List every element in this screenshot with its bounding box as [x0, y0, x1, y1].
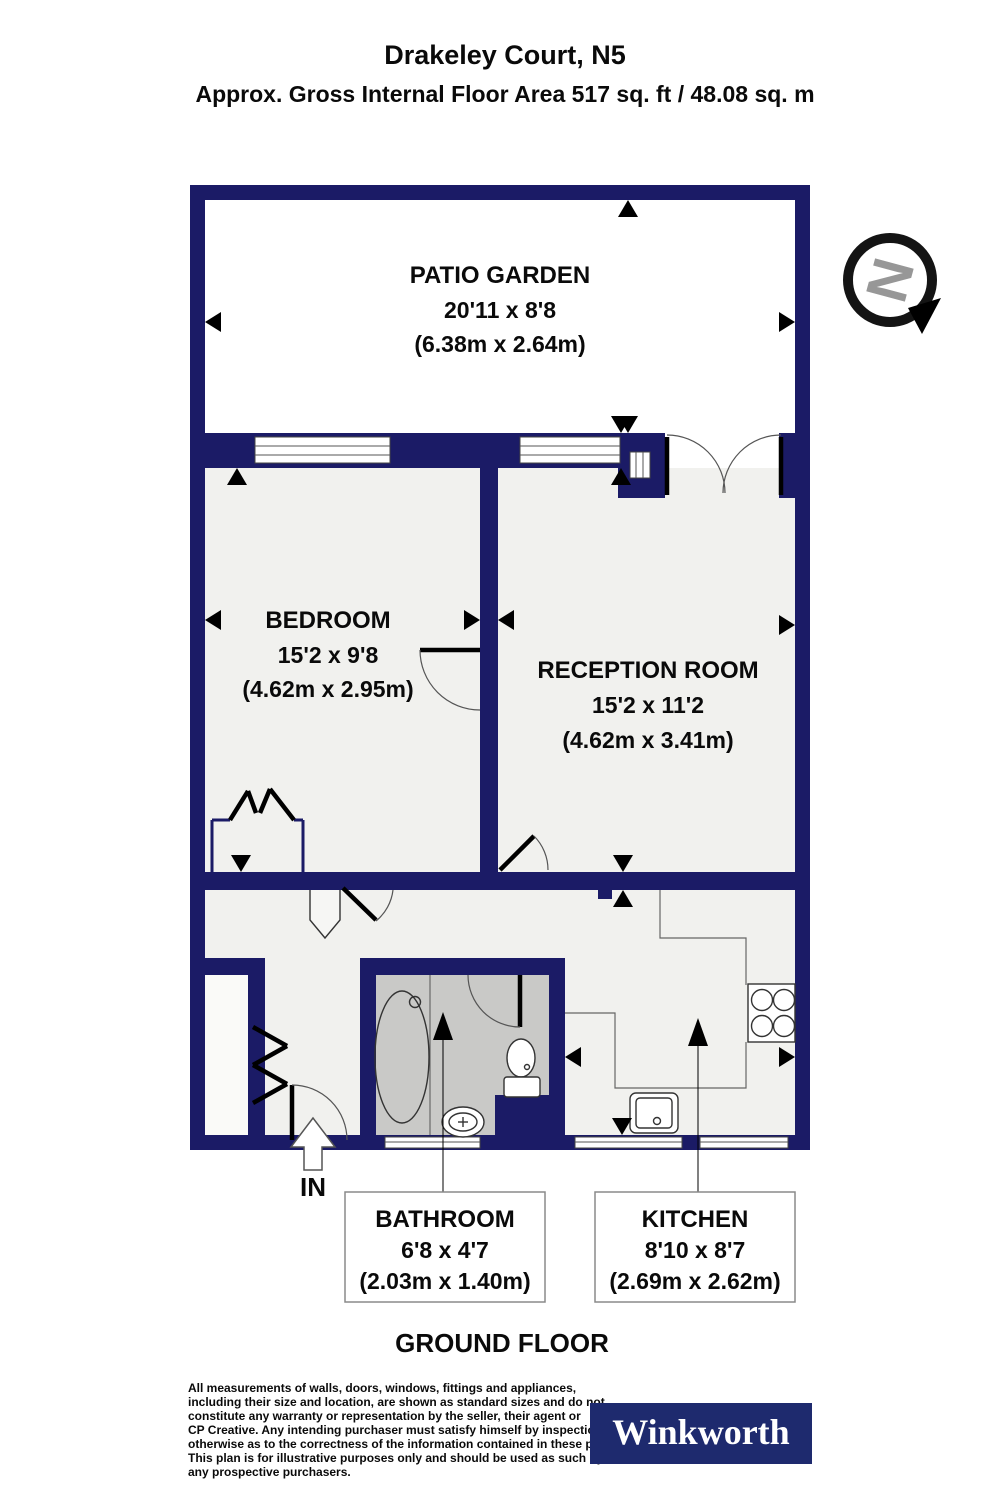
svg-text:BATHROOM: BATHROOM	[375, 1206, 515, 1233]
svg-text:otherwise as to the correctnes: otherwise as to the correctness of the i…	[188, 1437, 620, 1451]
page-subtitle: Approx. Gross Internal Floor Area 517 sq…	[195, 81, 814, 107]
entrance-label: IN	[300, 1172, 326, 1202]
brand-logo: Winkworth	[590, 1403, 812, 1464]
compass-north-letter: N	[853, 251, 927, 308]
svg-text:(2.03m x 1.40m): (2.03m x 1.40m)	[359, 1268, 530, 1294]
svg-text:KITCHEN: KITCHEN	[642, 1206, 749, 1233]
svg-text:15'2 x 9'8: 15'2 x 9'8	[278, 642, 379, 668]
page-title: Drakeley Court, N5	[384, 40, 626, 70]
disclaimer: All measurements of walls, doors, window…	[188, 1381, 620, 1479]
floor-label: GROUND FLOOR	[395, 1328, 609, 1358]
floorplan-page: Drakeley Court, N5 Approx. Gross Interna…	[0, 0, 1000, 1500]
brand-logo-text: Winkworth	[612, 1412, 789, 1452]
toilet-bowl	[507, 1039, 535, 1077]
toilet-tank	[504, 1077, 540, 1097]
svg-text:RECEPTION ROOM: RECEPTION ROOM	[537, 657, 758, 684]
hob	[748, 984, 795, 1042]
entrance-floor	[265, 958, 360, 1135]
svg-text:CP Creative. Any intending pur: CP Creative. Any intending purchaser mus…	[188, 1423, 618, 1437]
svg-text:This plan is for illustrative: This plan is for illustrative purposes o…	[188, 1451, 604, 1465]
svg-text:(4.62m x 2.95m): (4.62m x 2.95m)	[242, 676, 413, 702]
svg-text:6'8 x 4'7: 6'8 x 4'7	[401, 1237, 489, 1263]
svg-text:(2.69m x 2.62m): (2.69m x 2.62m)	[609, 1268, 780, 1294]
svg-text:(4.62m x 3.41m): (4.62m x 3.41m)	[562, 727, 733, 753]
svg-text:any prospective purchasers.: any prospective purchasers.	[188, 1465, 351, 1479]
svg-text:All measurements of walls, doo: All measurements of walls, doors, window…	[188, 1381, 576, 1395]
header: Drakeley Court, N5 Approx. Gross Interna…	[195, 40, 814, 107]
svg-text:constitute any warranty or rep: constitute any warranty or representatio…	[188, 1409, 581, 1423]
svg-text:PATIO GARDEN: PATIO GARDEN	[410, 262, 590, 289]
floorplan-canvas: Drakeley Court, N5 Approx. Gross Interna…	[0, 0, 1000, 1500]
svg-text:including their size and locat: including their size and location, are s…	[188, 1395, 605, 1409]
svg-text:20'11 x 8'8: 20'11 x 8'8	[444, 297, 556, 323]
svg-text:BEDROOM: BEDROOM	[265, 607, 390, 634]
bedroom-floor	[205, 468, 480, 872]
hall-closet-floor	[205, 975, 248, 1135]
svg-text:(6.38m x 2.64m): (6.38m x 2.64m)	[414, 331, 585, 357]
svg-text:15'2 x 11'2: 15'2 x 11'2	[592, 692, 704, 718]
kitchen-label-box: KITCHEN 8'10 x 8'7 (2.69m x 2.62m)	[595, 1192, 795, 1302]
svg-text:8'10 x 8'7: 8'10 x 8'7	[645, 1237, 745, 1263]
bathroom-label-box: BATHROOM 6'8 x 4'7 (2.03m x 1.40m)	[345, 1192, 545, 1302]
kitchen-sink	[630, 1093, 678, 1133]
compass-icon: N	[848, 238, 941, 334]
